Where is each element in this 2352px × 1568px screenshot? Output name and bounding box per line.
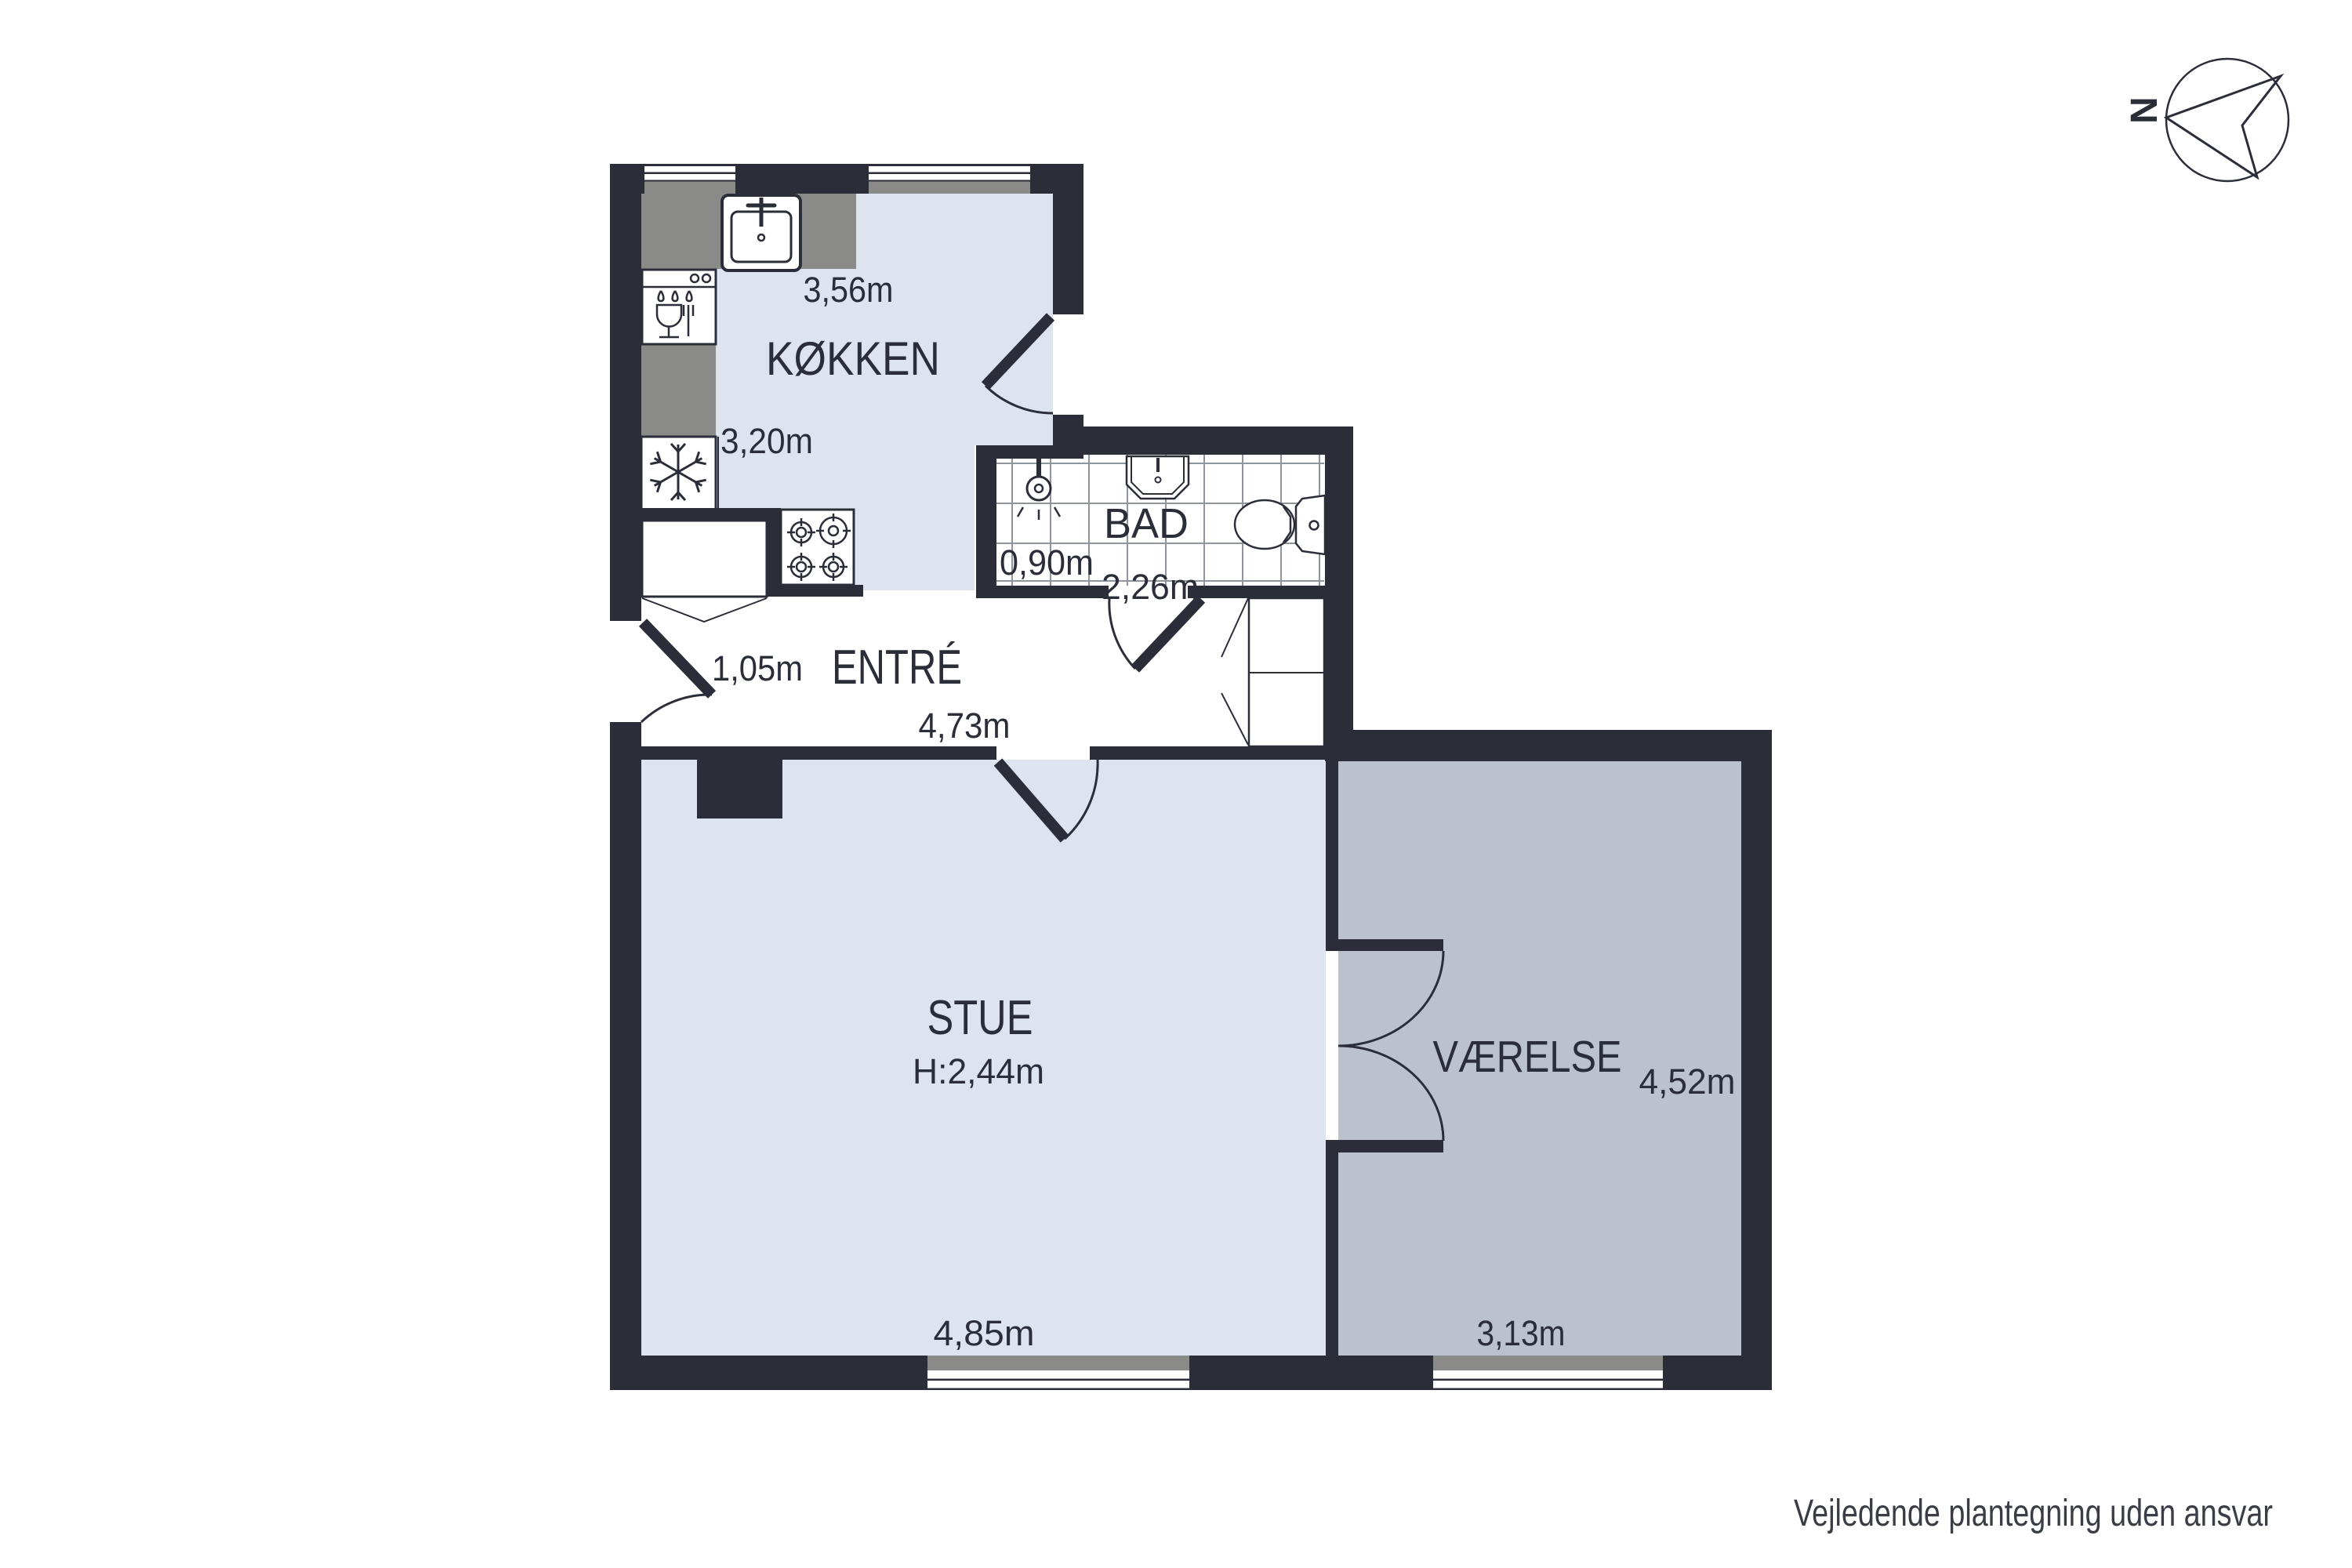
svg-text:2,26m: 2,26m (1102, 567, 1199, 607)
svg-text:Vejledende plantegning uden an: Vejledende plantegning uden ansvar (1794, 1493, 2273, 1534)
svg-text:3,56m: 3,56m (804, 270, 894, 310)
svg-text:STUE: STUE (927, 991, 1033, 1045)
svg-text:4,52m: 4,52m (1639, 1062, 1736, 1102)
svg-text:BAD: BAD (1104, 500, 1189, 547)
svg-text:3,20m: 3,20m (720, 421, 813, 461)
svg-text:KØKKEN: KØKKEN (766, 332, 940, 385)
svg-text:4,85m: 4,85m (934, 1313, 1035, 1353)
svg-text:1,05m: 1,05m (712, 648, 803, 688)
svg-text:VÆRELSE: VÆRELSE (1433, 1032, 1622, 1082)
svg-text:3,13m: 3,13m (1477, 1313, 1566, 1353)
svg-text:ENTRÉ: ENTRÉ (832, 641, 962, 695)
svg-text:4,73m: 4,73m (919, 706, 1011, 746)
svg-text:H:2,44m: H:2,44m (913, 1051, 1044, 1091)
svg-text:N: N (2124, 96, 2165, 124)
svg-text:0,90m: 0,90m (1000, 543, 1094, 583)
